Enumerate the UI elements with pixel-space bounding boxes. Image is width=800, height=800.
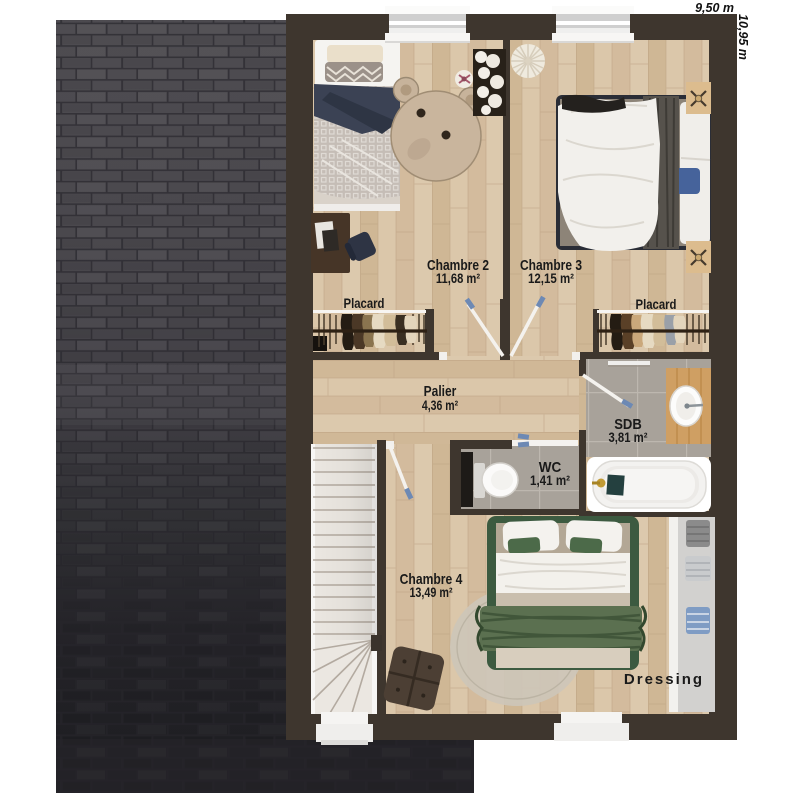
svg-text:10,95 m: 10,95 m	[736, 14, 750, 60]
svg-text:4,36 m²: 4,36 m²	[422, 398, 458, 414]
svg-text:1,41 m²: 1,41 m²	[530, 472, 571, 488]
svg-text:12,15 m²: 12,15 m²	[528, 270, 574, 286]
svg-text:11,68 m²: 11,68 m²	[436, 271, 480, 286]
svg-text:Placard: Placard	[636, 296, 677, 312]
svg-text:13,49 m²: 13,49 m²	[409, 585, 452, 601]
svg-text:Placard: Placard	[344, 295, 385, 311]
svg-text:9,50 m: 9,50 m	[695, 1, 734, 15]
svg-text:3,81 m²: 3,81 m²	[608, 429, 647, 445]
svg-text:Dressing: Dressing	[624, 671, 704, 688]
